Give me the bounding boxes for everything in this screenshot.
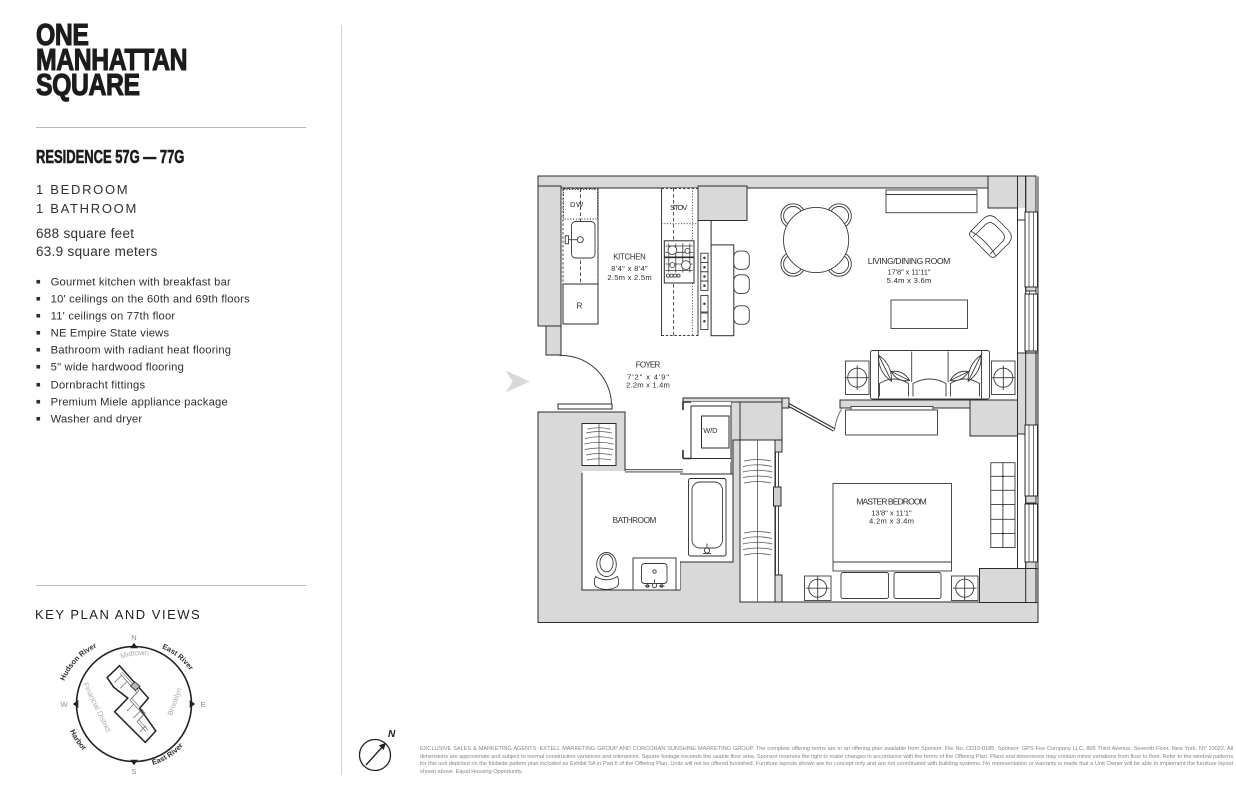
svg-text:2.5m x 2.5m: 2.5m x 2.5m <box>607 273 651 282</box>
svg-text:8'4" x 8'4": 8'4" x 8'4" <box>611 264 648 273</box>
svg-text:KITCHEN: KITCHEN <box>613 253 646 262</box>
svg-text:Midtown: Midtown <box>119 648 149 661</box>
svg-text:S: S <box>131 767 136 776</box>
svg-text:LIVING/DINING ROOM: LIVING/DINING ROOM <box>868 256 951 266</box>
svg-text:2.2m x 1.4m: 2.2m x 1.4m <box>626 381 670 390</box>
svg-text:BATHROOM: BATHROOM <box>613 516 657 525</box>
svg-text:4.2m x 3.4m: 4.2m x 3.4m <box>869 517 914 526</box>
svg-text:W: W <box>60 700 68 709</box>
svg-text:Harbor: Harbor <box>68 728 89 752</box>
svg-text:STOV: STOV <box>670 203 688 212</box>
svg-text:E: E <box>200 700 205 709</box>
svg-text:Financial District: Financial District <box>81 681 113 734</box>
svg-text:5.4m x 3.6m: 5.4m x 3.6m <box>887 276 932 285</box>
svg-text:N: N <box>131 633 136 642</box>
svg-text:FOYER: FOYER <box>636 361 661 370</box>
svg-text:R: R <box>577 302 583 311</box>
svg-text:Brooklyn: Brooklyn <box>165 687 183 717</box>
svg-text:W/D: W/D <box>703 426 718 435</box>
svg-text:N: N <box>388 729 396 740</box>
svg-text:Hudson River: Hudson River <box>58 641 98 682</box>
svg-text:MASTER BEDROOM: MASTER BEDROOM <box>856 497 927 507</box>
svg-text:DW: DW <box>570 200 584 209</box>
svg-text:East River: East River <box>151 741 185 767</box>
